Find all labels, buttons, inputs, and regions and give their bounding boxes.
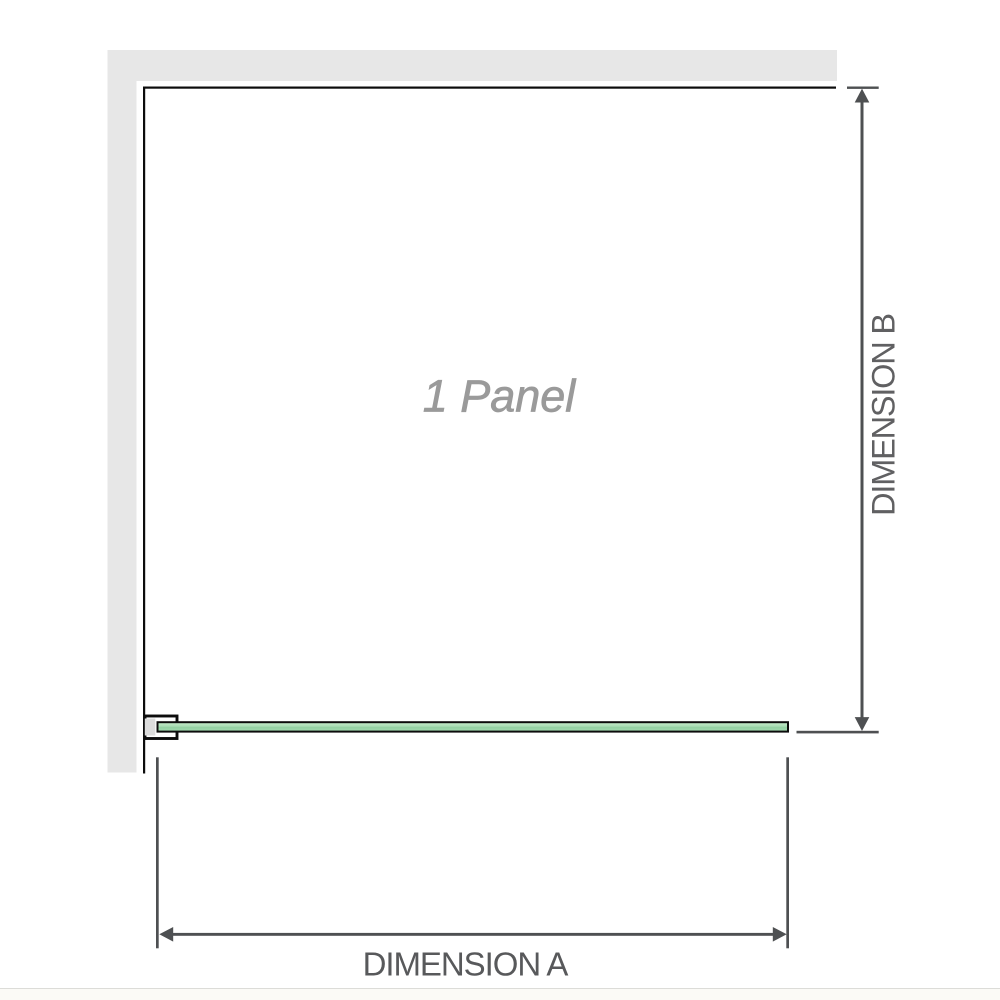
svg-text:DIMENSION A: DIMENSION A xyxy=(363,946,569,983)
svg-text:DIMENSION B: DIMENSION B xyxy=(866,314,902,516)
svg-text:1 Panel: 1 Panel xyxy=(423,371,578,422)
